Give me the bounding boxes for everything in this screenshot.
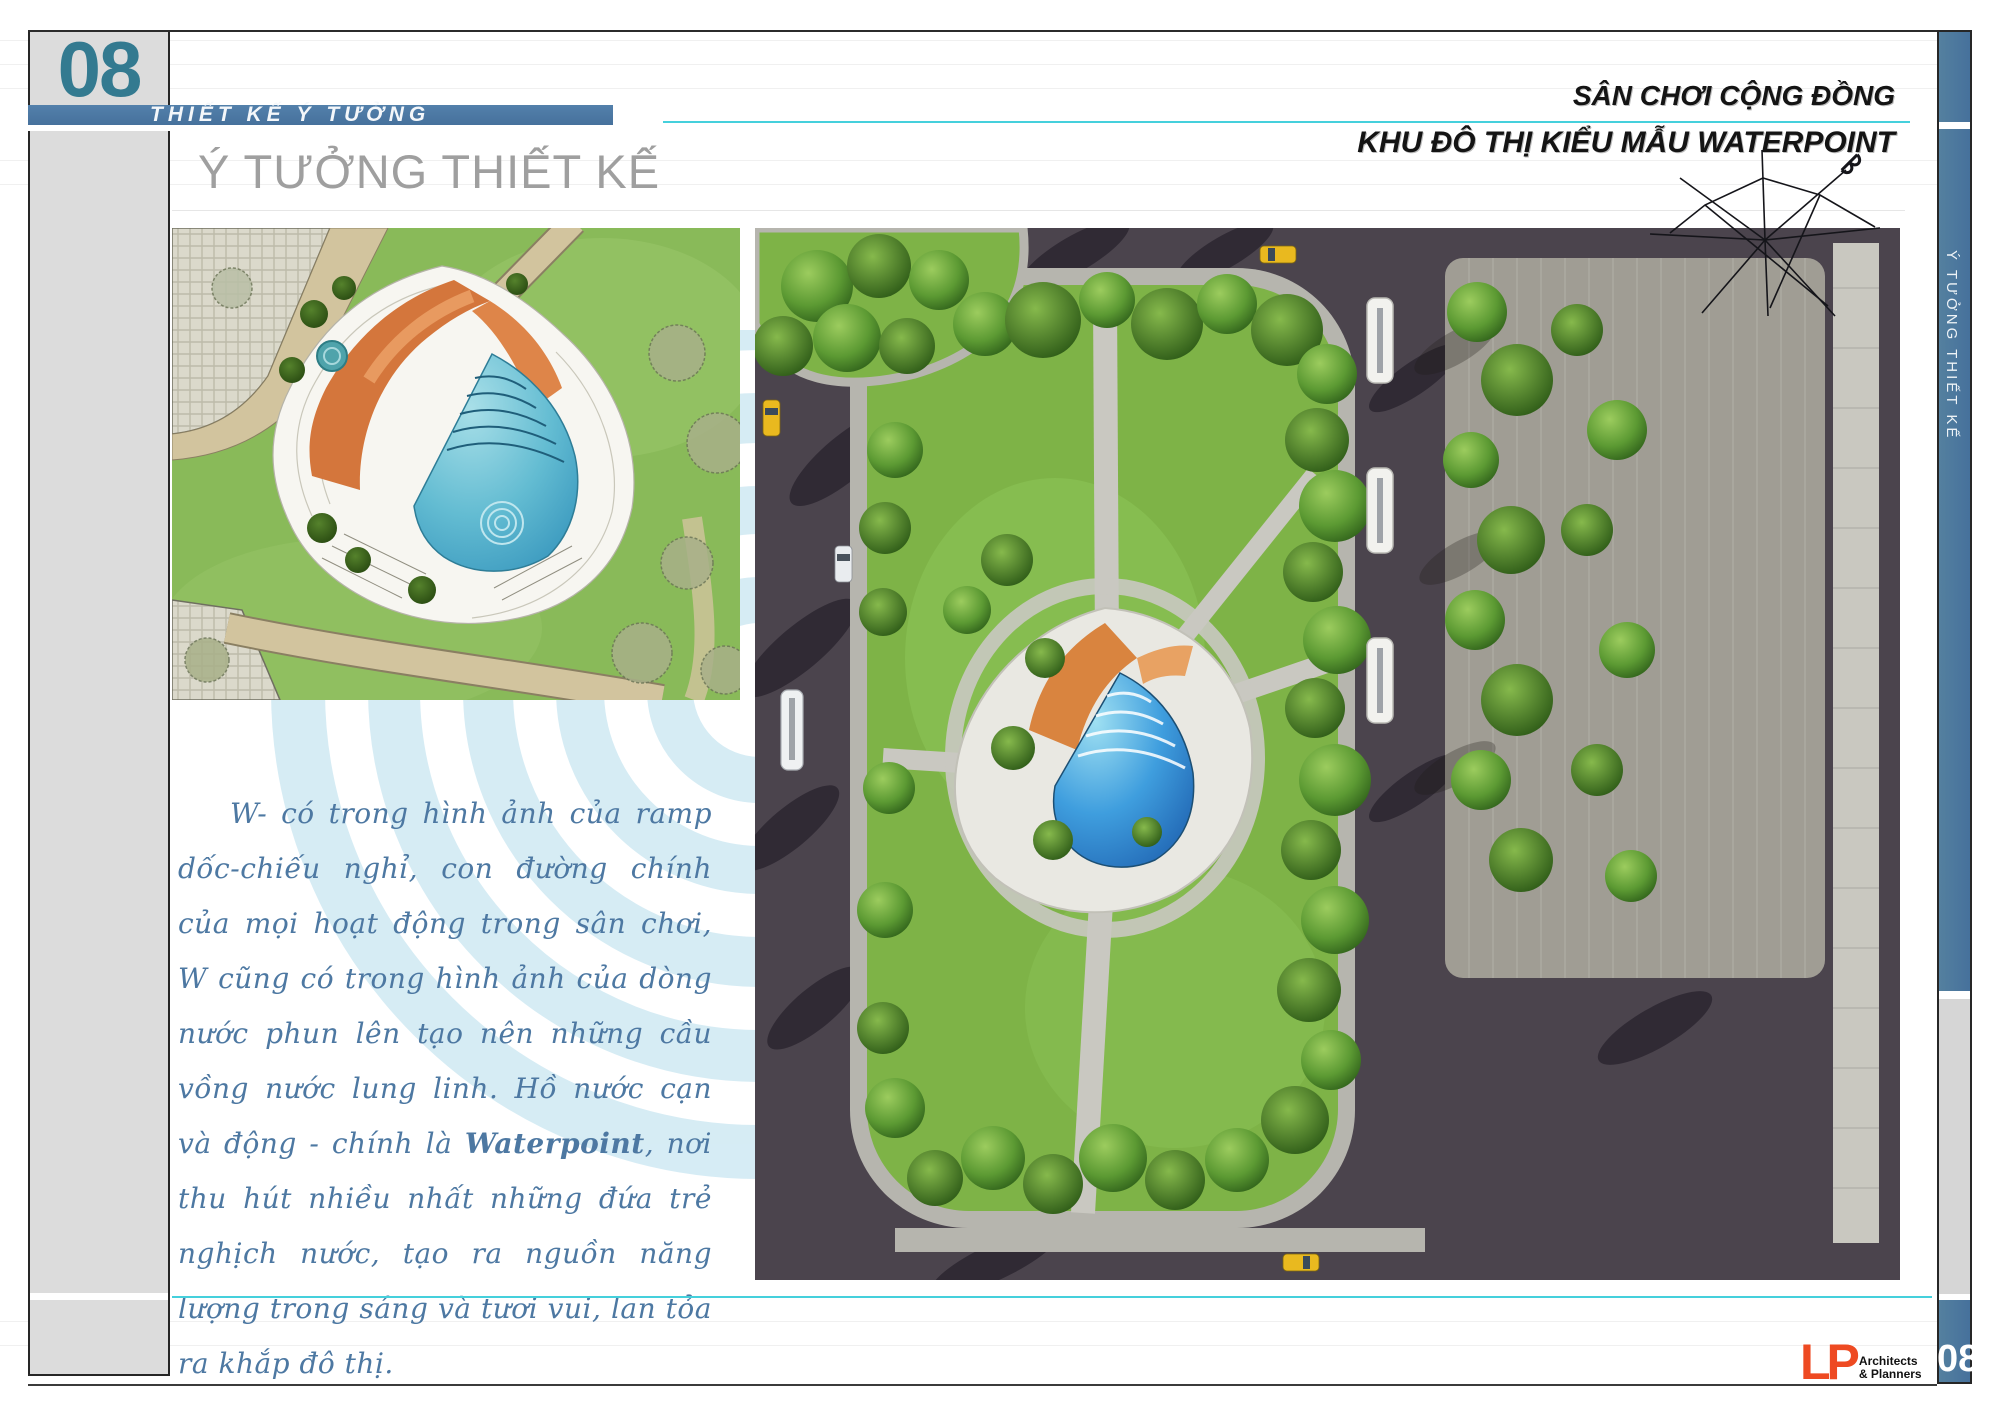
page-number-top: 08 [28,24,170,115]
presentation-page: 08 THIẾT KẾ Ý TƯỞNG SÂN CHƠI CỘNG ĐỒNG K… [0,0,2000,1414]
project-subtitle: SÂN CHƠI CỘNG ĐỒNG [1573,80,1895,112]
page-bottom-rule [28,1384,1937,1386]
body-paragraph: W- có trong hình ảnh của ramp dốc-chiếu … [178,786,712,1391]
logo-mark: LP [1800,1340,1856,1384]
gridline [0,64,1937,65]
aerial-render-image [755,228,1900,1280]
logo-line1: Architects [1859,1354,1918,1368]
logo-line2: & Planners [1859,1367,1922,1381]
right-sidebar [1937,30,1972,1384]
sidebar-segment-top [1939,32,1970,122]
footer-cyan-rule [172,1296,1932,1298]
page-title: Ý TƯỞNG THIẾT KẾ [198,144,660,199]
company-logo: LP Architects & Planners [1800,1336,1930,1384]
page-number-bottom: 08 [1937,1338,1972,1381]
left-margin-column [28,30,170,1376]
section-band-label: THIẾT KẾ Ý TƯỞNG [150,103,430,127]
body-text-part2: , nơi thu hút nhiều nhất những đứa trẻ n… [178,1127,712,1380]
gridline [0,40,1937,41]
left-column-gap [30,1293,168,1300]
north-arrow-icon [1650,148,1890,318]
logo-text: Architects & Planners [1859,1355,1922,1384]
page-top-rule [28,30,1972,32]
sidebar-segment-gray [1939,999,1970,1294]
body-text-part1: W- có trong hình ảnh của ramp dốc-chiếu … [178,797,712,1160]
body-text-highlight: Waterpoint [465,1127,645,1160]
sidebar-vertical-label: Ý TƯỞNG THIẾT KẾ [1943,250,1960,440]
title-underline [172,210,1905,211]
concept-plan-image [172,228,740,700]
header-cyan-rule [663,121,1910,123]
